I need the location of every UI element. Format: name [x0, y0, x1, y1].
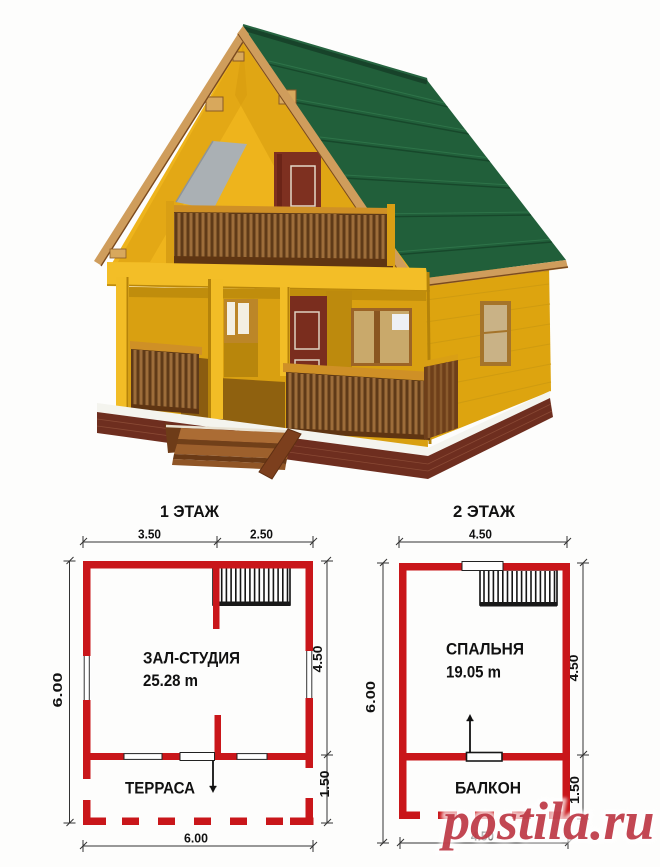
svg-text:4.50: 4.50 — [469, 528, 492, 542]
svg-text:СПАЛЬНЯ: СПАЛЬНЯ — [446, 641, 524, 659]
svg-text:2 ЭТАЖ: 2 ЭТАЖ — [453, 503, 515, 521]
svg-text:6.00: 6.00 — [184, 832, 208, 846]
svg-text:1.50: 1.50 — [318, 770, 332, 797]
svg-text:ЗАЛ-СТУДИЯ: ЗАЛ-СТУДИЯ — [143, 650, 240, 668]
svg-text:4.50: 4.50 — [311, 645, 325, 672]
svg-text:3.50: 3.50 — [138, 528, 161, 542]
svg-text:ТЕРРАСА: ТЕРРАСА — [125, 779, 195, 798]
svg-text:6.00: 6.00 — [51, 672, 65, 707]
svg-text:2.50: 2.50 — [250, 528, 273, 542]
svg-text:19.05 m: 19.05 m — [446, 664, 501, 682]
svg-text:1 ЭТАЖ: 1 ЭТАЖ — [160, 503, 219, 521]
svg-text:postila.ru: postila.ru — [439, 791, 655, 851]
svg-text:6.00: 6.00 — [364, 681, 378, 713]
svg-text:25.28 m: 25.28 m — [143, 672, 198, 690]
